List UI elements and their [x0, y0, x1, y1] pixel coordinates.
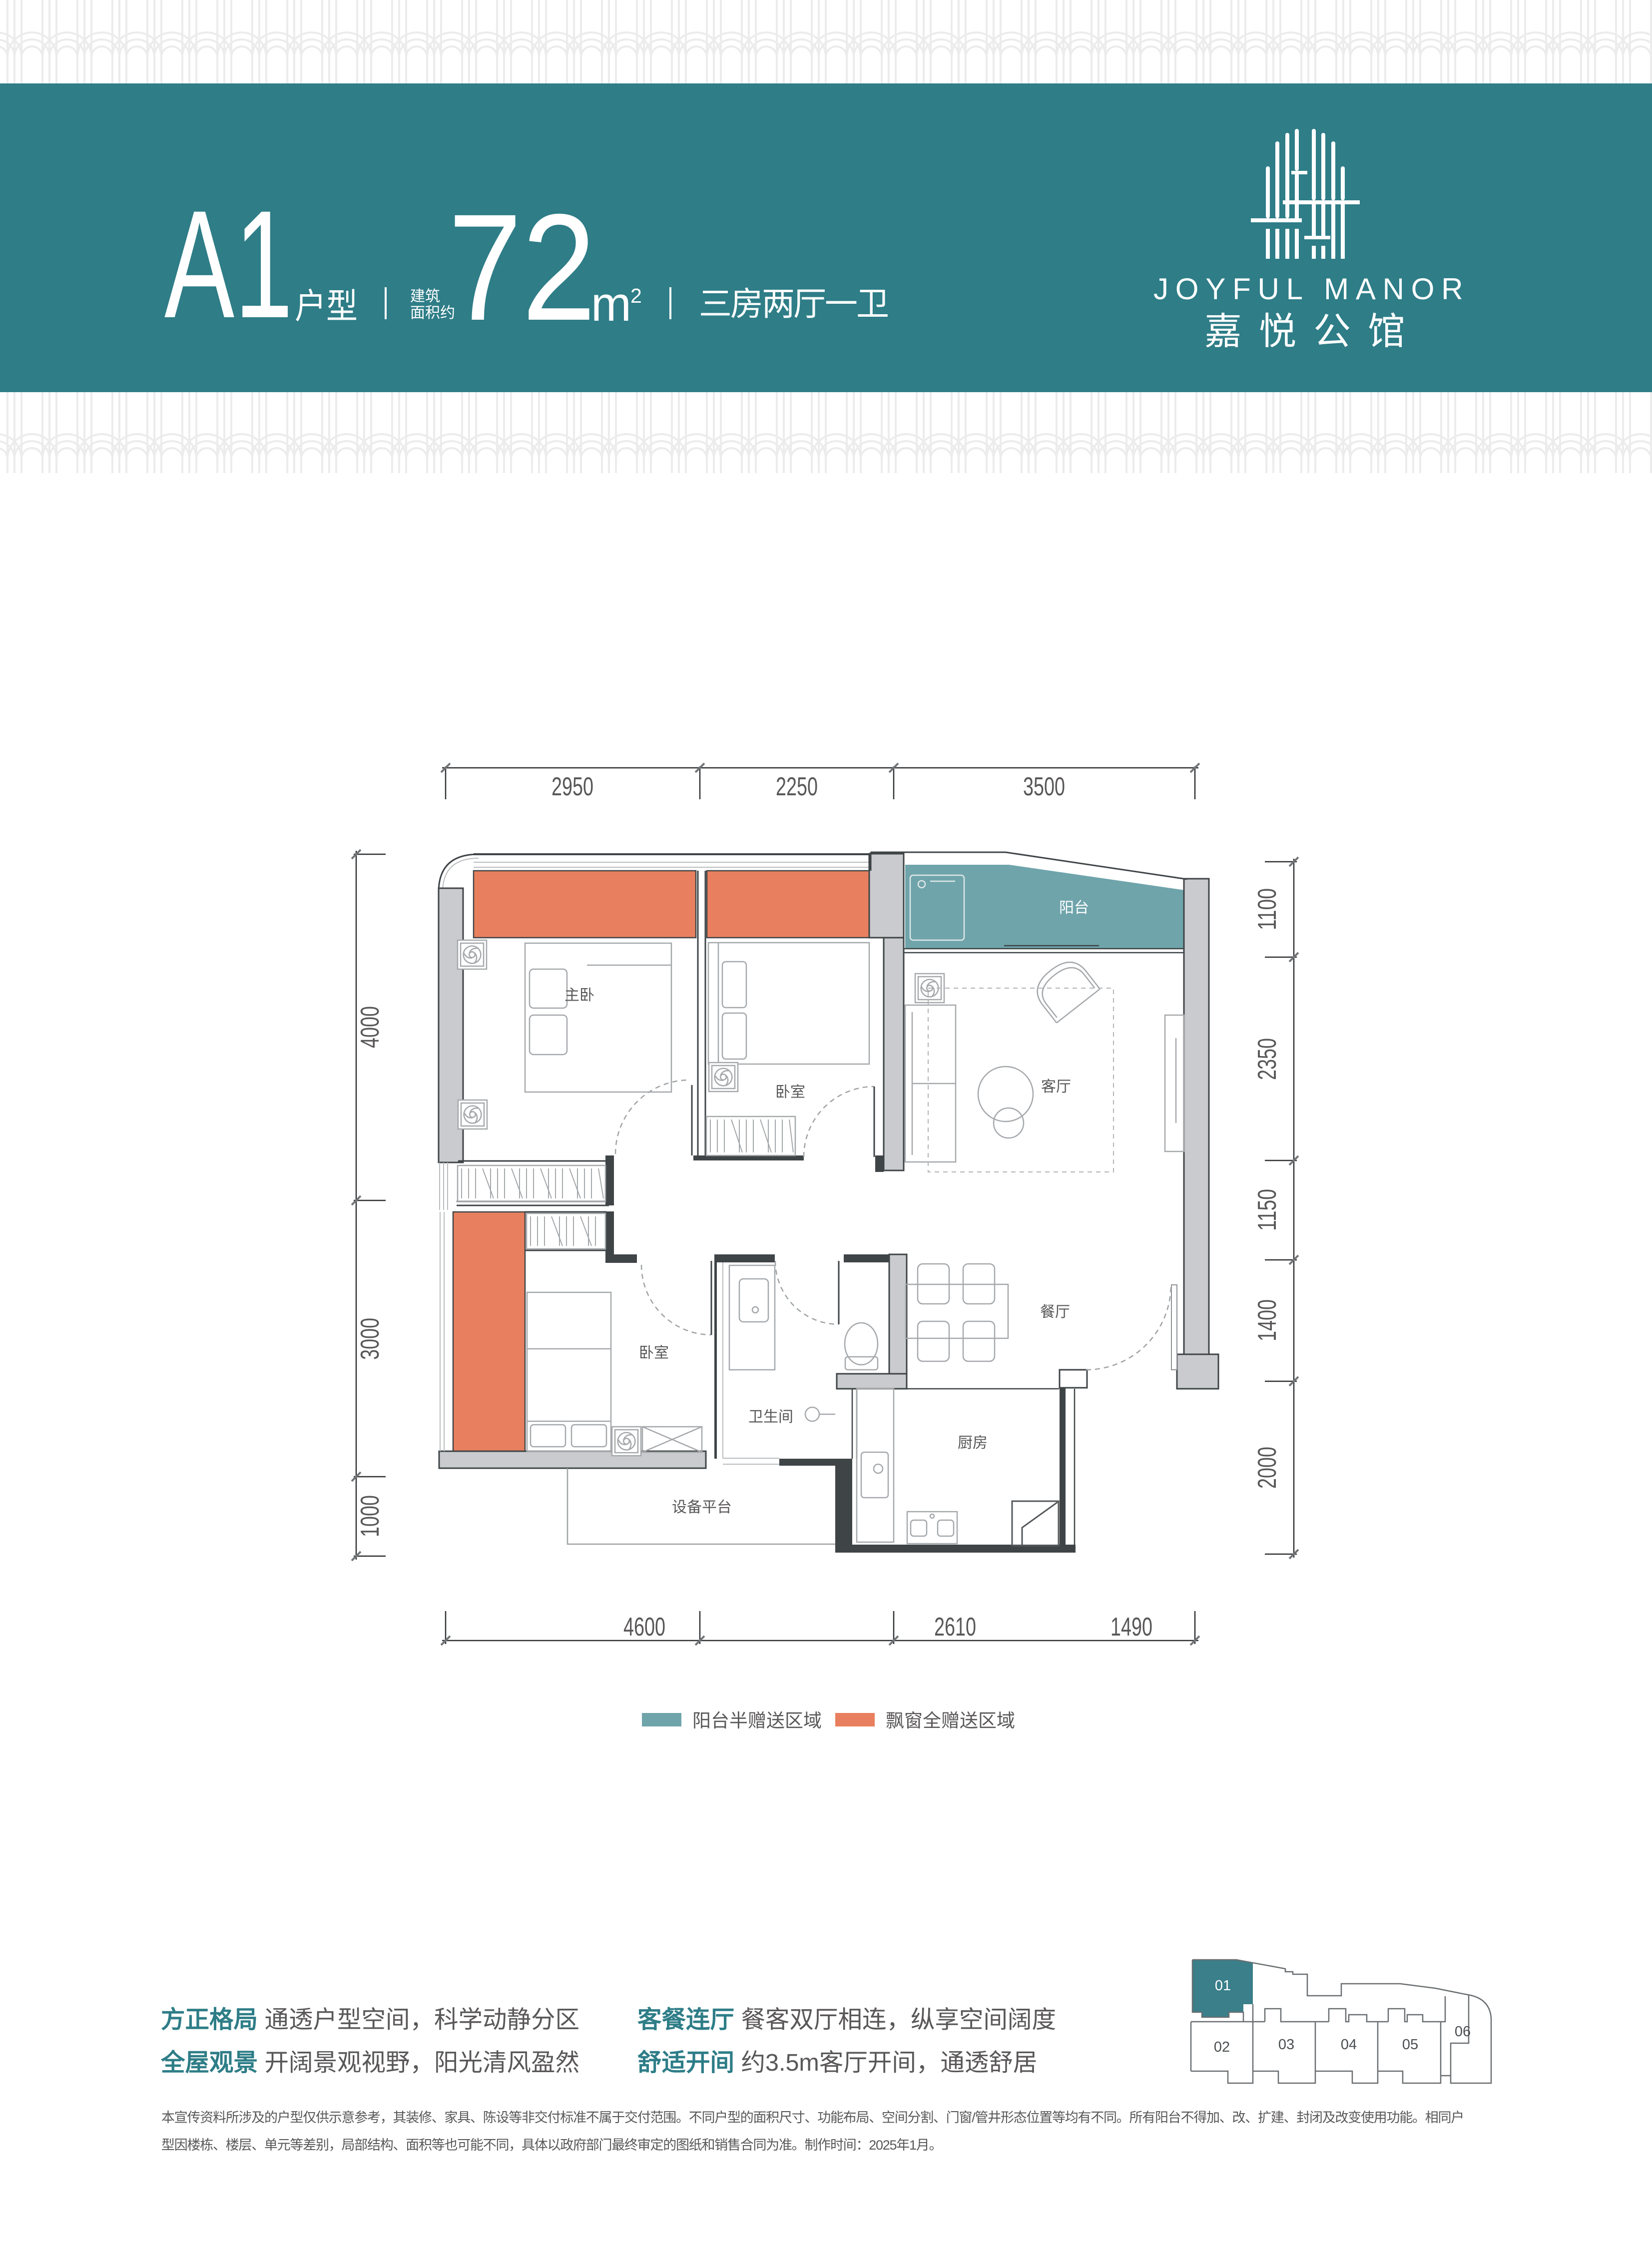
svg-text:2000: 2000	[1253, 1447, 1282, 1489]
svg-text:2610: 2610	[934, 1613, 976, 1642]
svg-text:设备平台: 设备平台	[672, 1499, 732, 1516]
svg-text:01: 01	[1215, 1978, 1231, 1994]
svg-text:2950: 2950	[551, 772, 593, 801]
svg-text:2350: 2350	[1253, 1038, 1282, 1080]
svg-text:1150: 1150	[1253, 1189, 1282, 1231]
svg-text:1000: 1000	[356, 1495, 385, 1537]
svg-text:1100: 1100	[1253, 888, 1282, 930]
svg-text:卧室: 卧室	[639, 1345, 669, 1361]
svg-text:05: 05	[1402, 2037, 1418, 2053]
svg-text:1400: 1400	[1253, 1299, 1282, 1341]
svg-text:03: 03	[1278, 2037, 1294, 2053]
svg-text:04: 04	[1341, 2037, 1357, 2053]
svg-text:厨房: 厨房	[958, 1435, 988, 1451]
svg-text:3000: 3000	[356, 1318, 385, 1360]
svg-text:2250: 2250	[776, 772, 818, 801]
svg-text:4000: 4000	[356, 1006, 385, 1048]
svg-text:主卧: 主卧	[564, 987, 594, 1004]
svg-text:06: 06	[1455, 2024, 1471, 2040]
svg-text:卫生间: 卫生间	[748, 1409, 793, 1425]
svg-text:餐厅: 餐厅	[1040, 1304, 1070, 1320]
svg-text:02: 02	[1214, 2039, 1230, 2055]
svg-text:1490: 1490	[1110, 1613, 1152, 1642]
svg-text:阳台: 阳台	[1059, 900, 1089, 916]
svg-text:4600: 4600	[623, 1613, 665, 1642]
svg-text:客厅: 客厅	[1041, 1079, 1071, 1095]
svg-text:3500: 3500	[1023, 772, 1065, 801]
svg-text:卧室: 卧室	[775, 1084, 805, 1101]
